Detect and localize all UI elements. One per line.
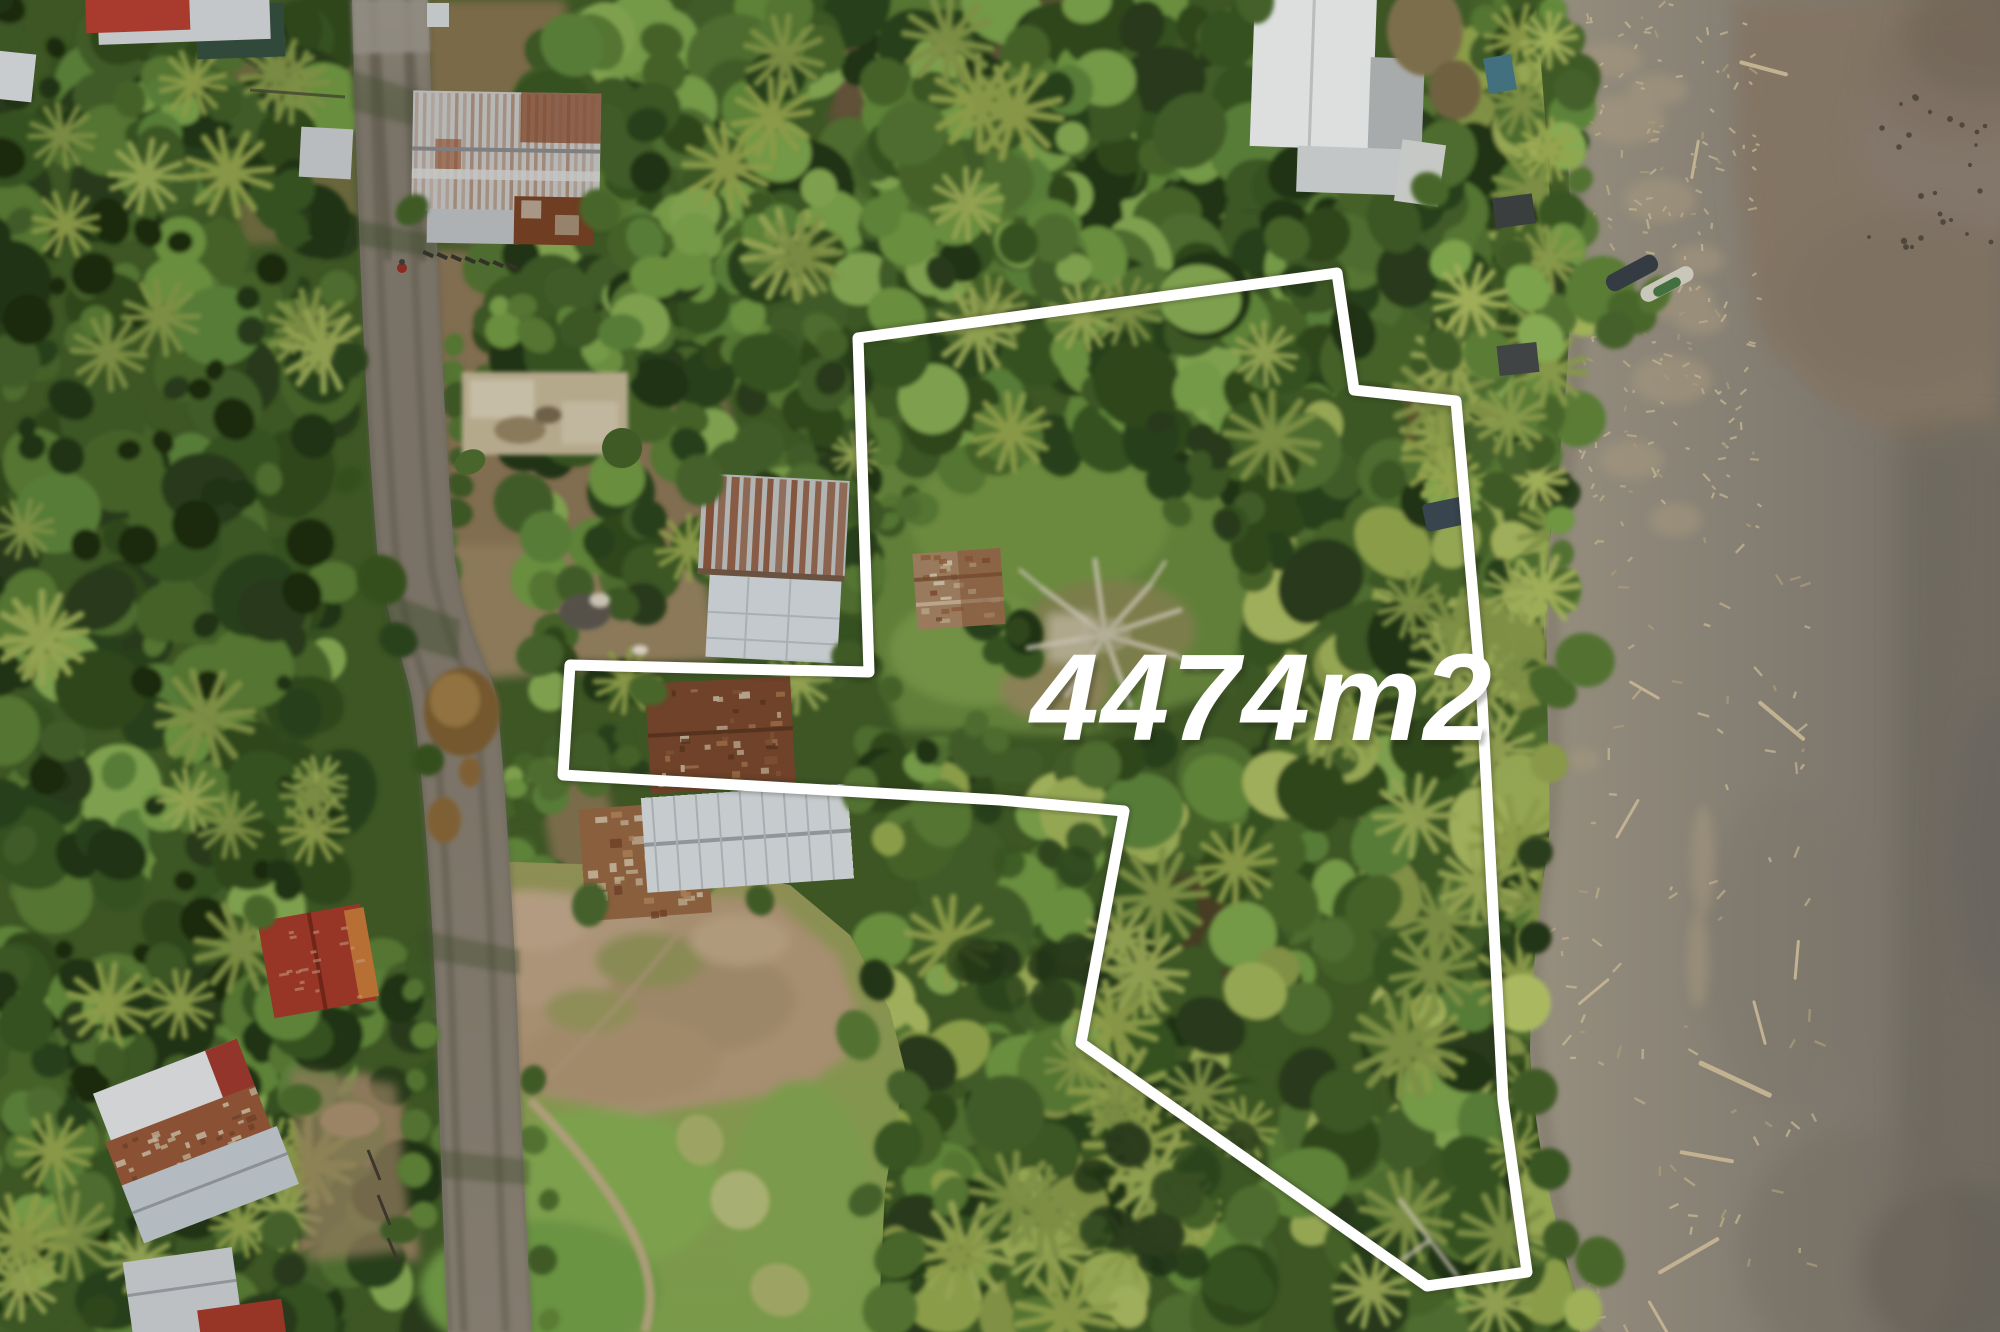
svg-text:4474m2: 4474m2: [1027, 630, 1493, 767]
